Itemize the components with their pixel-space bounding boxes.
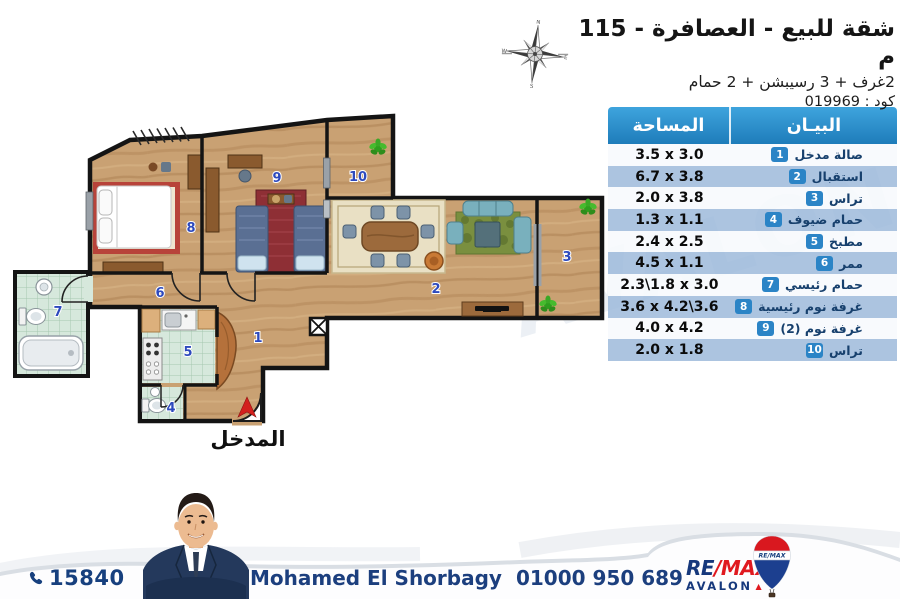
compass-icon: N E S W (500, 20, 570, 88)
room-name: مطبخ (829, 234, 863, 249)
agent-contact: Mohamed El Shorbagy01000 950 689 (250, 566, 662, 590)
area-value: 2.4 x 2.5 (608, 231, 731, 253)
area-value: 2.0 x 3.8 (608, 187, 731, 209)
table-row: 4.5 x 1.1 ممر6 (608, 252, 897, 274)
room-name: تراس (829, 343, 863, 358)
agent-photo (143, 493, 249, 599)
hotline-number: 15840 (49, 566, 125, 590)
area-value: 2.0 x 1.8 (608, 339, 731, 361)
table-row: 3.5 x 3.0 صالة مدخل1 (608, 144, 897, 166)
room-number-label: 9 (272, 171, 281, 186)
room-number-label: 8 (186, 221, 195, 236)
room-label: تراس3 (731, 187, 897, 209)
shaft-box (310, 318, 327, 335)
row-number-badge: 7 (762, 277, 779, 292)
floor-plan: المدخل 1 2 3 4 5 6 7 8 9 10 (5, 112, 615, 460)
hotline: 15840 (28, 566, 125, 590)
table-row: 2.0 x 1.8 تراس10 (608, 339, 897, 361)
area-value: 4.5 x 1.1 (608, 252, 731, 274)
room-label: حمام ضيوف4 (731, 209, 897, 231)
page-title: شقة للبيع - العصافرة - 115 م (563, 16, 895, 71)
room-number-label: 2 (431, 282, 440, 297)
bathroom-door-gap (84, 276, 93, 302)
page-subtitle: 2غرف + 3 رسيبشن + 2 حمام (563, 73, 895, 91)
area-value: 3.5 x 3.0 (608, 144, 731, 166)
remax-balloon-icon: RE/MAX (748, 534, 796, 598)
room-label: ممر6 (731, 252, 897, 274)
room-number-label: 10 (349, 170, 367, 185)
svg-text:E: E (564, 55, 569, 61)
room-name: حمام ضيوف (788, 212, 863, 227)
room-name: حمام رئيسي (785, 277, 863, 292)
table-row: 1.3 x 1.1 حمام ضيوف4 (608, 209, 897, 231)
table-row: 6.7 x 3.8 استقبال2 (608, 166, 897, 188)
row-number-badge: 10 (806, 343, 823, 358)
room-name: غرفة نوم (2) (780, 321, 863, 336)
room-label: غرفة نوم رئيسية8 (731, 296, 897, 318)
room-label: مطبخ5 (731, 231, 897, 253)
area-value: 4.0 x 4.2 (608, 318, 731, 340)
table-row: 2.3\1.8 x 3.0 حمام رئيسي7 (608, 274, 897, 296)
svg-text:S: S (529, 84, 534, 88)
areas-table: المساحة البيـان 3.5 x 3.0 صالة مدخل1 6.7… (608, 107, 897, 361)
table-row: 2.4 x 2.5 مطبخ5 (608, 231, 897, 253)
room-number-label: 7 (53, 305, 62, 320)
agent-name: Mohamed El Shorbagy (250, 566, 502, 590)
agent-phone: 01000 950 689 (516, 566, 683, 590)
area-value: 6.7 x 3.8 (608, 166, 731, 188)
table-row: 3.6 x 4.2\3.6 غرفة نوم رئيسية8 (608, 296, 897, 318)
phone-icon (28, 570, 44, 586)
room-number-label: 6 (155, 286, 164, 301)
row-number-badge: 5 (806, 234, 823, 249)
svg-text:RE/MAX: RE/MAX (759, 553, 787, 560)
row-number-badge: 8 (735, 299, 752, 314)
room-name: ممر (839, 256, 863, 271)
room-name: غرفة نوم رئيسية (758, 299, 863, 314)
table-header: المساحة البيـان (608, 107, 897, 144)
area-value: 2.3\1.8 x 3.0 (608, 274, 731, 296)
row-number-badge: 9 (757, 321, 774, 336)
room-label: حمام رئيسي7 (731, 274, 897, 296)
room-label: تراس10 (731, 339, 897, 361)
flyer-canvas: AVALON شقة للبيع - العصافرة - 115 م 2غرف… (0, 0, 900, 599)
room-name: استقبال (812, 169, 863, 184)
listing-code: كود : 019969 (563, 94, 895, 110)
row-number-badge: 1 (771, 147, 788, 162)
row-number-badge: 2 (789, 169, 806, 184)
table-row: 2.0 x 3.8 تراس3 (608, 187, 897, 209)
room-label: غرفة نوم (2)9 (731, 318, 897, 340)
svg-text:N: N (536, 20, 541, 26)
area-value: 3.6 x 4.2\3.6 (608, 296, 731, 318)
entrance-label: المدخل (210, 427, 285, 451)
area-value: 1.3 x 1.1 (608, 209, 731, 231)
room-number-label: 4 (166, 401, 175, 416)
row-number-badge: 4 (765, 212, 782, 227)
row-number-badge: 3 (806, 191, 823, 206)
room-name: صالة مدخل (794, 147, 863, 162)
area-header-cell: المساحة (608, 107, 731, 144)
room-name: تراس (829, 191, 863, 206)
header: شقة للبيع - العصافرة - 115 م 2غرف + 3 رس… (563, 16, 895, 110)
row-number-badge: 6 (816, 256, 833, 271)
table-row: 4.0 x 4.2 غرفة نوم (2)9 (608, 318, 897, 340)
room-label: صالة مدخل1 (731, 144, 897, 166)
room-number-label: 5 (183, 345, 192, 360)
tv-console (462, 302, 523, 316)
room-number-label: 3 (562, 250, 571, 265)
description-header-cell: البيـان (731, 107, 897, 144)
room-number-label: 1 (253, 331, 262, 346)
dining-set (332, 200, 445, 273)
room-label: استقبال2 (731, 166, 897, 188)
